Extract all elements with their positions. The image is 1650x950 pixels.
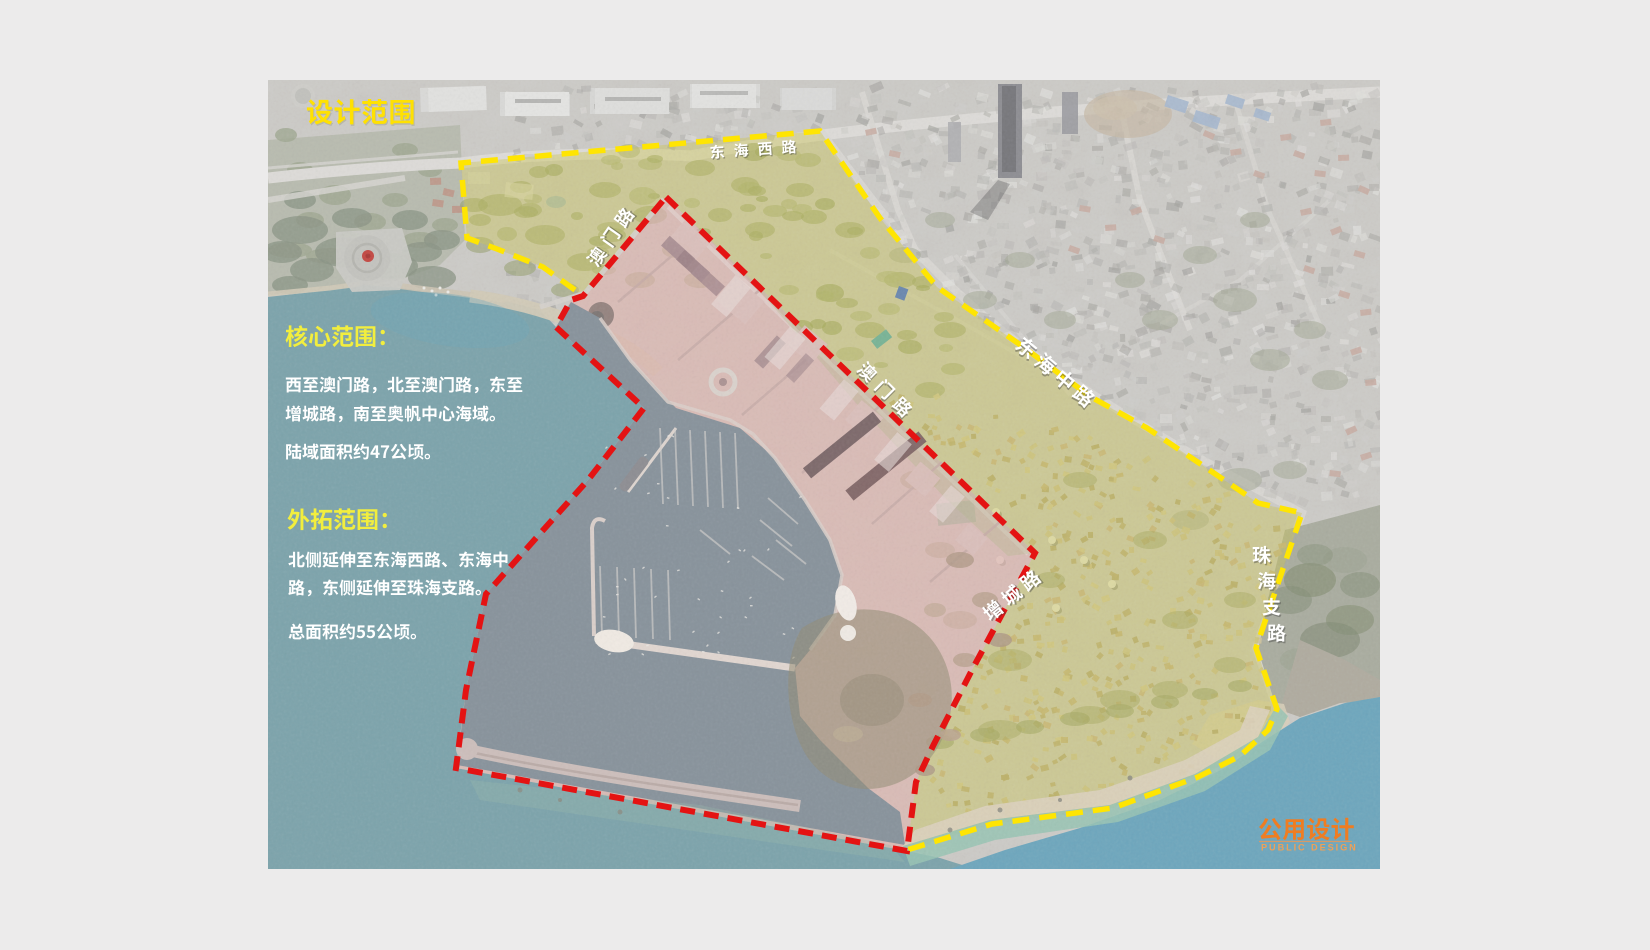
- svg-text:PUBLIC DESIGN: PUBLIC DESIGN: [1261, 843, 1358, 853]
